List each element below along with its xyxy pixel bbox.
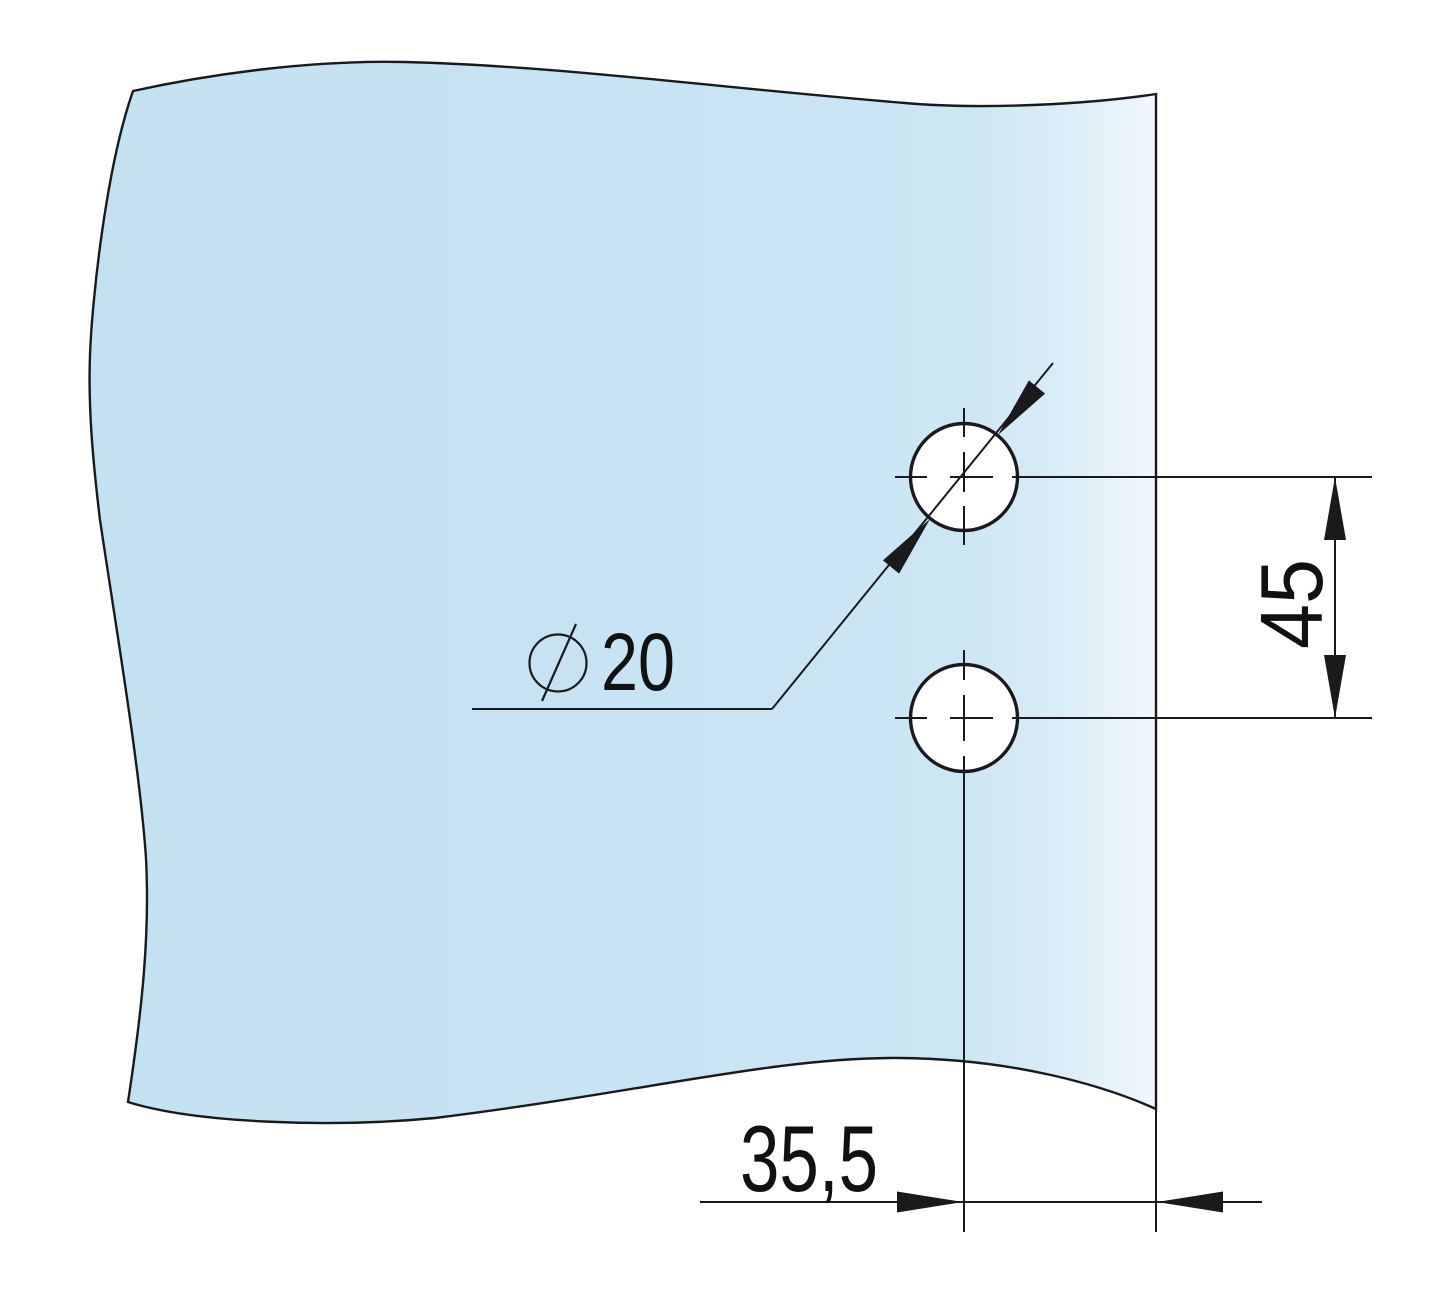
glass-drilling-diagram: 20 45 35,5 bbox=[0, 0, 1445, 1304]
horizontal-dimension-label: 35,5 bbox=[740, 1106, 878, 1211]
diameter-value-label: 20 bbox=[601, 617, 675, 708]
glass-panel bbox=[90, 62, 1156, 1123]
vertical-dimension-label: 45 bbox=[1242, 559, 1341, 649]
technical-drawing-page: 20 45 35,5 bbox=[0, 0, 1445, 1304]
